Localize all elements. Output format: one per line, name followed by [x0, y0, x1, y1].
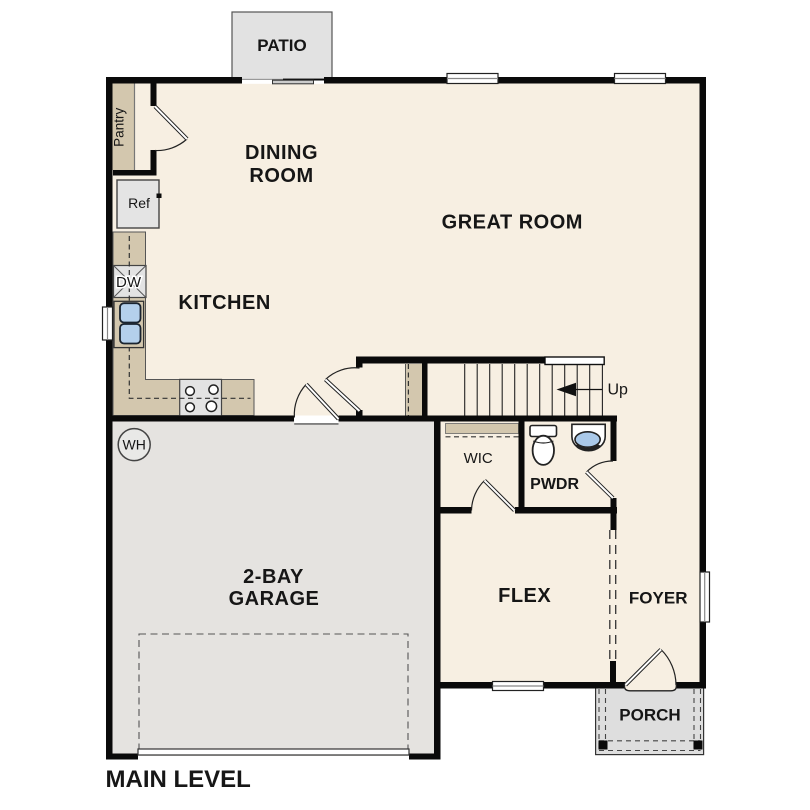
svg-text:Up: Up [608, 382, 629, 399]
svg-text:GREAT ROOM: GREAT ROOM [442, 212, 583, 234]
svg-text:Pantry: Pantry [111, 108, 126, 147]
svg-text:Ref: Ref [128, 195, 150, 211]
svg-text:FOYER: FOYER [629, 589, 688, 608]
svg-text:DINING: DINING [245, 142, 318, 164]
svg-text:MAIN LEVEL: MAIN LEVEL [106, 766, 251, 793]
svg-text:PWDR: PWDR [530, 476, 579, 493]
svg-text:ROOM: ROOM [249, 165, 313, 187]
svg-text:WH: WH [123, 437, 146, 453]
svg-text:DW: DW [116, 274, 142, 291]
svg-text:KITCHEN: KITCHEN [178, 292, 270, 314]
svg-text:GARAGE: GARAGE [229, 588, 320, 610]
svg-text:PATIO: PATIO [257, 36, 306, 55]
svg-text:FLEX: FLEX [498, 585, 551, 607]
svg-text:2-BAY: 2-BAY [243, 566, 304, 588]
svg-text:PORCH: PORCH [619, 706, 680, 725]
svg-text:WIC: WIC [464, 450, 493, 467]
